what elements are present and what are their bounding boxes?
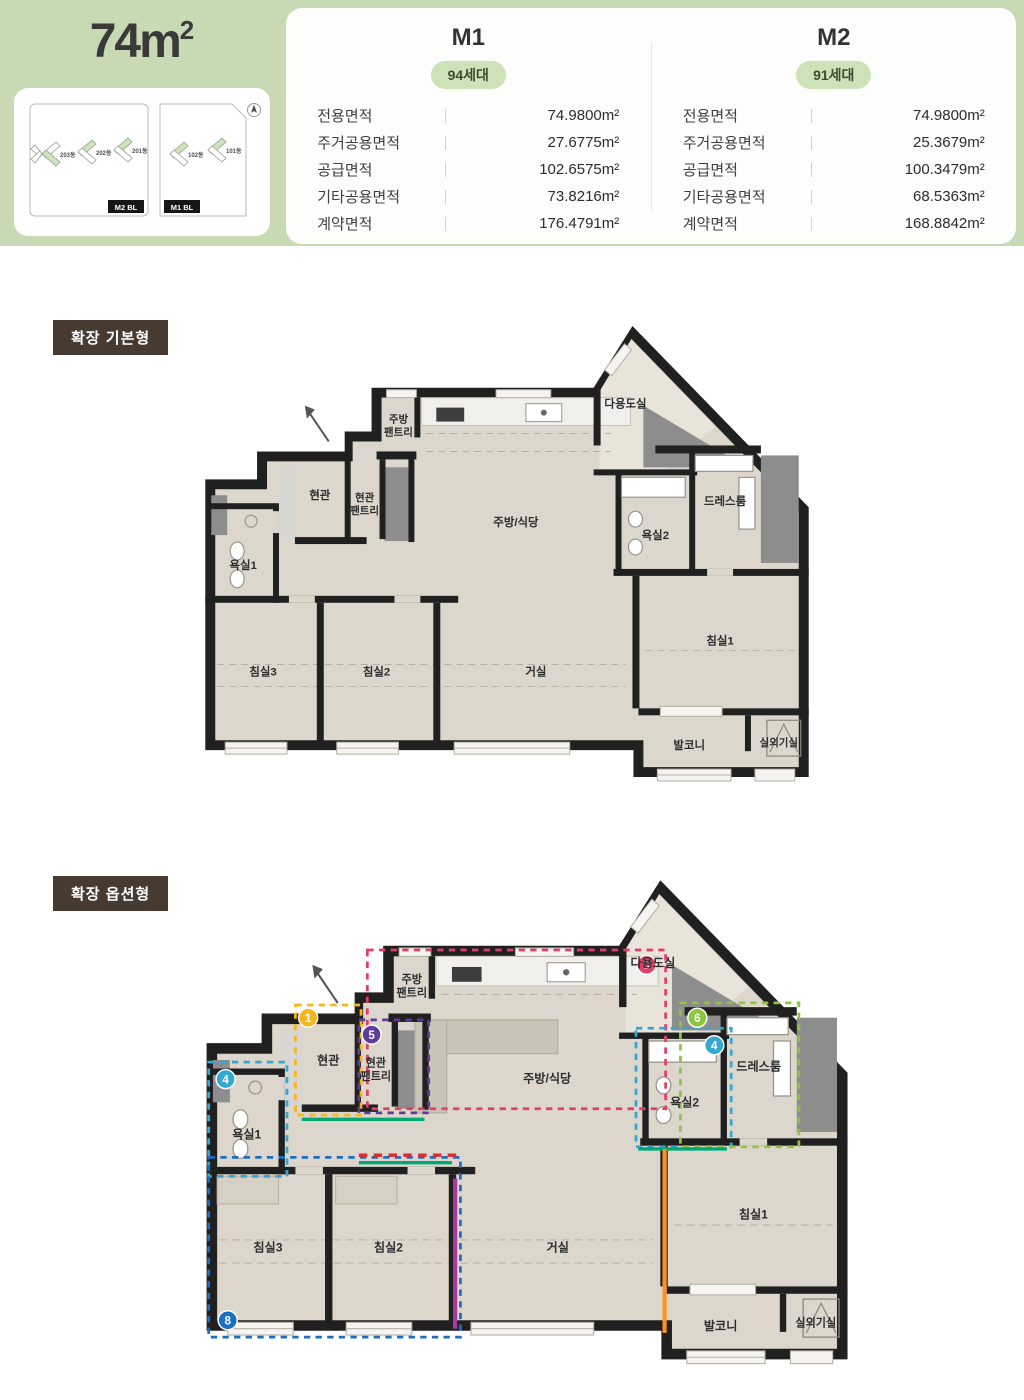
option-marker-8: 8 <box>218 1311 237 1330</box>
entry-arrow <box>312 965 337 1003</box>
room-label-bath1: 욕실1 <box>232 1126 261 1141</box>
site-plan-card: 203동 202동 201동 102동 <box>14 88 270 236</box>
room-label-entry-pantry: 현관 <box>355 491 375 504</box>
room-label-living: 거실 <box>547 1239 569 1254</box>
duct-right <box>761 455 799 563</box>
spec-value: 74.9800m² <box>812 107 985 124</box>
spec-value: 102.6575m² <box>446 161 619 178</box>
window <box>496 390 551 398</box>
spec-row: 공급면적100.3479m² <box>683 156 985 183</box>
room-label-bath2: 욕실2 <box>670 1095 699 1110</box>
option-marker-4b: 4 <box>705 1036 724 1055</box>
cooktop <box>452 967 482 982</box>
building-label: 201동 <box>132 147 148 155</box>
entry-closet <box>277 467 295 539</box>
kitchen-sink <box>547 963 585 982</box>
window <box>346 1322 412 1335</box>
spec-value: 73.8216m² <box>446 188 619 205</box>
spec-row: 전용면적74.9800m² <box>683 102 985 129</box>
floor-plan-basic: 주방 팬트리 현관 현관 팬트리 주방/식당 다용도실 드레스룸 욕실2 욕실1… <box>197 322 815 788</box>
spec-label: 전용면적 <box>317 105 445 126</box>
spec-row: 주거공용면적27.6775m² <box>317 129 619 156</box>
unit-count-badge-m2: 91세대 <box>796 61 871 89</box>
spec-label: 주거공용면적 <box>317 132 445 153</box>
cooktop <box>436 408 464 422</box>
spec-value: 27.6775m² <box>446 134 619 151</box>
svg-text:4: 4 <box>222 1073 229 1086</box>
room-label-dressroom: 드레스룸 <box>736 1059 781 1074</box>
spec-row: 계약면적176.4791m² <box>317 210 619 237</box>
room-label-bed1: 침실1 <box>706 634 734 648</box>
spec-label: 기타공용면적 <box>317 186 445 207</box>
room-label-bed3: 침실3 <box>253 1239 282 1254</box>
spec-label: 공급면적 <box>683 159 811 180</box>
option-marker-1: 1 <box>299 1008 318 1027</box>
area-size-sup: 2 <box>180 15 194 45</box>
room-label-kitchen-dining: 주방/식당 <box>523 1070 571 1085</box>
duct-left <box>211 495 227 535</box>
svg-text:M1 BL: M1 BL <box>171 203 194 212</box>
spec-row: 공급면적102.6575m² <box>317 156 619 183</box>
room-label-kitchen-pantry2: 팬트리 <box>396 986 427 1000</box>
room-label-entry: 현관 <box>317 1052 339 1067</box>
type-name-m1: M1 <box>286 24 651 52</box>
room-label-bed2: 침실2 <box>374 1239 403 1254</box>
building-label: 101동 <box>226 147 242 155</box>
window <box>454 742 570 754</box>
room-label-living: 거실 <box>525 664 546 678</box>
room-label-kitchen-pantry2: 팬트리 <box>384 426 413 439</box>
room-label-entry-pantry: 현관 <box>366 1055 387 1069</box>
duct-entry <box>385 467 409 541</box>
window <box>225 742 287 754</box>
m1-bl-badge: M1 BL <box>164 200 200 213</box>
svg-text:5: 5 <box>368 1029 375 1042</box>
option-marker-6: 6 <box>688 1008 707 1027</box>
spec-row: 계약면적168.8842m² <box>683 210 985 237</box>
compass-icon <box>248 104 261 117</box>
svg-text:8: 8 <box>224 1314 231 1327</box>
room-label-bed3: 침실3 <box>249 664 276 678</box>
window <box>471 1322 594 1335</box>
svg-text:6: 6 <box>694 1012 701 1025</box>
room-label-entry-pantry2: 팬트리 <box>350 504 379 517</box>
room-label-utility: 다용도실 <box>631 955 676 970</box>
plan-tag-option: 확장 옵션형 <box>53 876 168 911</box>
spec-value: 25.3679m² <box>812 134 985 151</box>
room-label-balcony: 발코니 <box>704 1318 738 1333</box>
spec-col-m2: M2 91세대 전용면적74.9800m² 주거공용면적25.3679m² 공급… <box>652 8 1017 244</box>
spec-label: 기타공용면적 <box>683 186 811 207</box>
room-label-bed1: 침실1 <box>739 1207 768 1222</box>
window <box>337 742 399 754</box>
window <box>790 1351 832 1364</box>
room-label-entry-pantry2: 팬트리 <box>360 1069 391 1083</box>
spec-col-m1: M1 94세대 전용면적74.9800m² 주거공용면적27.6775m² 공급… <box>286 8 651 244</box>
spec-value: 176.4791m² <box>446 215 619 232</box>
spec-value: 168.8842m² <box>812 215 985 232</box>
window <box>657 769 731 781</box>
svg-text:M2 BL: M2 BL <box>115 203 138 212</box>
floor-plan-option: 1 3 4 4 5 6 8 주방 팬트리 현관 현관 팬트리 <box>198 876 854 1371</box>
room-label-dressroom: 드레스룸 <box>704 494 747 508</box>
room-label-entry: 현관 <box>309 488 331 502</box>
header-band: 74m2 203동 202동 <box>0 0 1024 246</box>
room-label-kitchen-pantry: 주방 <box>402 972 423 986</box>
room-label-bath2: 욕실2 <box>642 528 669 542</box>
svg-text:1: 1 <box>305 1012 312 1025</box>
floor-plan-page: 74m2 203동 202동 <box>0 0 1024 1400</box>
building-label: 102동 <box>188 151 204 159</box>
spec-rows-m2: 전용면적74.9800m² 주거공용면적25.3679m² 공급면적100.34… <box>683 102 985 237</box>
room-label-balcony: 발코니 <box>673 738 705 752</box>
room-label-bed2: 침실2 <box>363 664 390 678</box>
page-title: 74m2 <box>28 14 256 69</box>
spec-rows-m1: 전용면적74.9800m² 주거공용면적27.6775m² 공급면적102.65… <box>317 102 619 237</box>
m2-bl-badge: M2 BL <box>108 200 144 213</box>
kitchen-sink <box>526 404 562 422</box>
spec-value: 100.3479m² <box>812 161 985 178</box>
window <box>228 1322 294 1335</box>
spec-label: 주거공용면적 <box>683 132 811 153</box>
room-label-bath1: 욕실1 <box>229 558 257 572</box>
spec-label: 계약면적 <box>317 213 445 234</box>
window <box>387 390 417 398</box>
spec-label: 계약면적 <box>683 213 811 234</box>
plan-tag-basic: 확장 기본형 <box>53 320 168 355</box>
spec-row: 기타공용면적73.8216m² <box>317 183 619 210</box>
room-label-kitchen-pantry: 주방 <box>389 413 409 426</box>
option-marker-4a: 4 <box>216 1070 235 1089</box>
site-block-m1 <box>160 104 246 216</box>
spec-row: 주거공용면적25.3679m² <box>683 129 985 156</box>
site-plan-map: 203동 202동 201동 102동 <box>14 88 270 236</box>
area-size-text: 74m <box>90 15 180 68</box>
spec-value: 74.9800m² <box>446 107 619 124</box>
spec-label: 공급면적 <box>317 159 445 180</box>
option-marker-5: 5 <box>362 1025 381 1044</box>
window <box>687 1351 765 1364</box>
spec-row: 전용면적74.9800m² <box>317 102 619 129</box>
building-label: 202동 <box>96 149 112 157</box>
window <box>755 769 795 781</box>
duct-right <box>797 1018 837 1132</box>
unit-count-badge-m1: 94세대 <box>431 61 506 89</box>
spec-label: 전용면적 <box>683 105 811 126</box>
room-label-ac: 실외기실 <box>795 1316 836 1330</box>
type-name-m2: M2 <box>652 24 1017 52</box>
spec-card: M1 94세대 전용면적74.9800m² 주거공용면적27.6775m² 공급… <box>286 8 1016 244</box>
svg-text:4: 4 <box>711 1039 718 1052</box>
spec-value: 68.5363m² <box>812 188 985 205</box>
entry-arrow <box>305 406 329 442</box>
spec-row: 기타공용면적68.5363m² <box>683 183 985 210</box>
room-label-utility: 다용도실 <box>604 397 646 411</box>
building-label: 203동 <box>60 151 76 159</box>
room-label-ac: 실외기실 <box>760 736 798 749</box>
room-label-kitchen-dining: 주방/식당 <box>493 515 539 529</box>
